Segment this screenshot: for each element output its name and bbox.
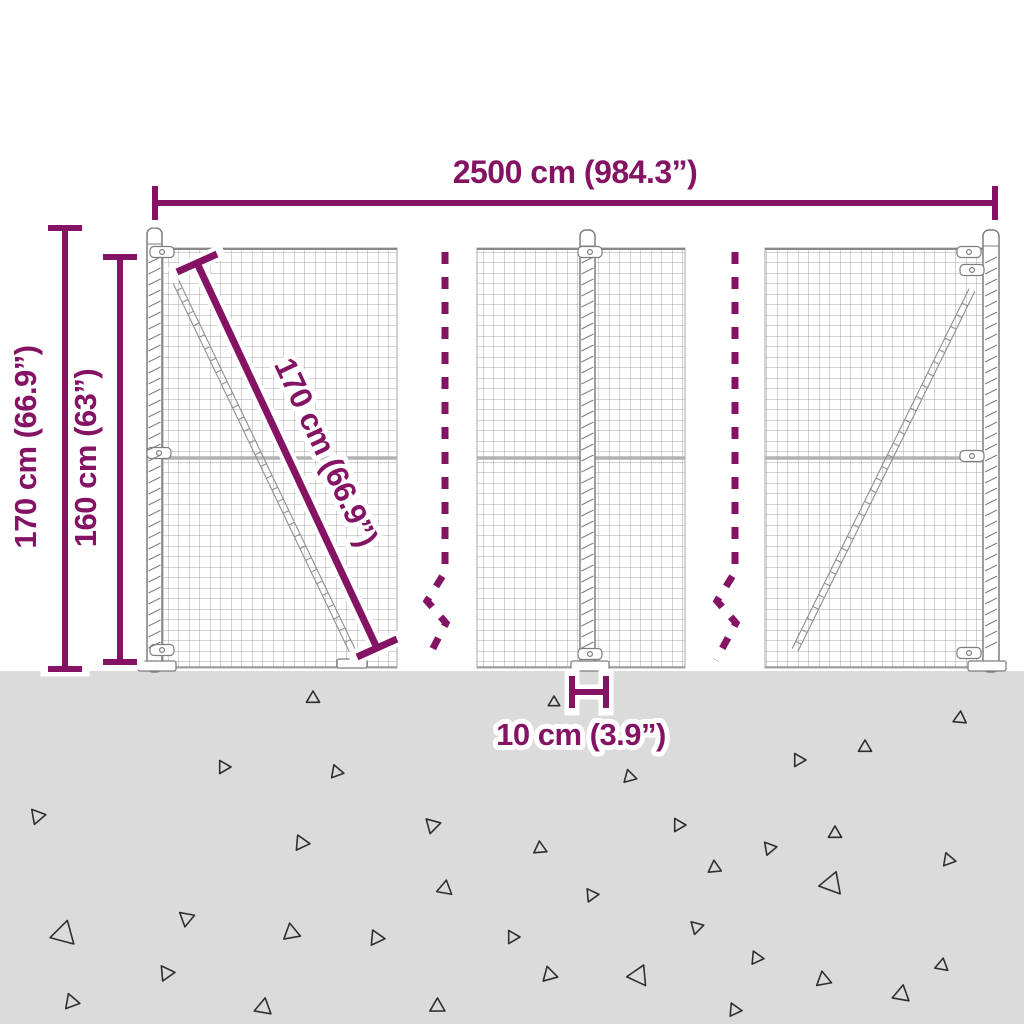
post-clamp-bolt [970, 454, 975, 459]
dimension-post-height-label: 170 cm (66.9”) [8, 345, 43, 548]
dimension-mesh-height: 160 cm (63”) [68, 257, 137, 662]
break-mark-right [716, 252, 736, 660]
post-base-plate-right [968, 661, 1006, 671]
diagram-canvas: 2500 cm (984.3”) 170 cm (66.9”) 160 cm (… [0, 0, 1024, 1024]
post-clamp-bolt [970, 268, 975, 273]
break-mark-left [427, 252, 446, 660]
wire-mesh-fence [138, 228, 1006, 672]
post-clamp-bolt [157, 451, 162, 456]
post-clamp-bolt [588, 652, 593, 657]
dimension-total-width: 2500 cm (984.3”) [155, 154, 995, 220]
fence-panel-right [765, 248, 985, 668]
product-dimension-diagram: 2500 cm (984.3”) 170 cm (66.9”) 160 cm (… [0, 0, 1024, 1024]
dimension-total-width-label: 2500 cm (984.3”) [453, 154, 698, 190]
post-clamp-bolt [588, 250, 593, 255]
post-clamp-bolt [967, 250, 972, 255]
post-clamp-bolt [967, 651, 972, 656]
dimension-line [155, 186, 995, 220]
post-clamp-bolt [160, 648, 165, 653]
post-clamp-bolt [160, 250, 165, 255]
dimension-mesh-height-label: 160 cm (63”) [68, 369, 103, 547]
dimension-anchor-label: 10 cm (3.9”) [496, 717, 666, 752]
dimension-line [103, 257, 137, 662]
